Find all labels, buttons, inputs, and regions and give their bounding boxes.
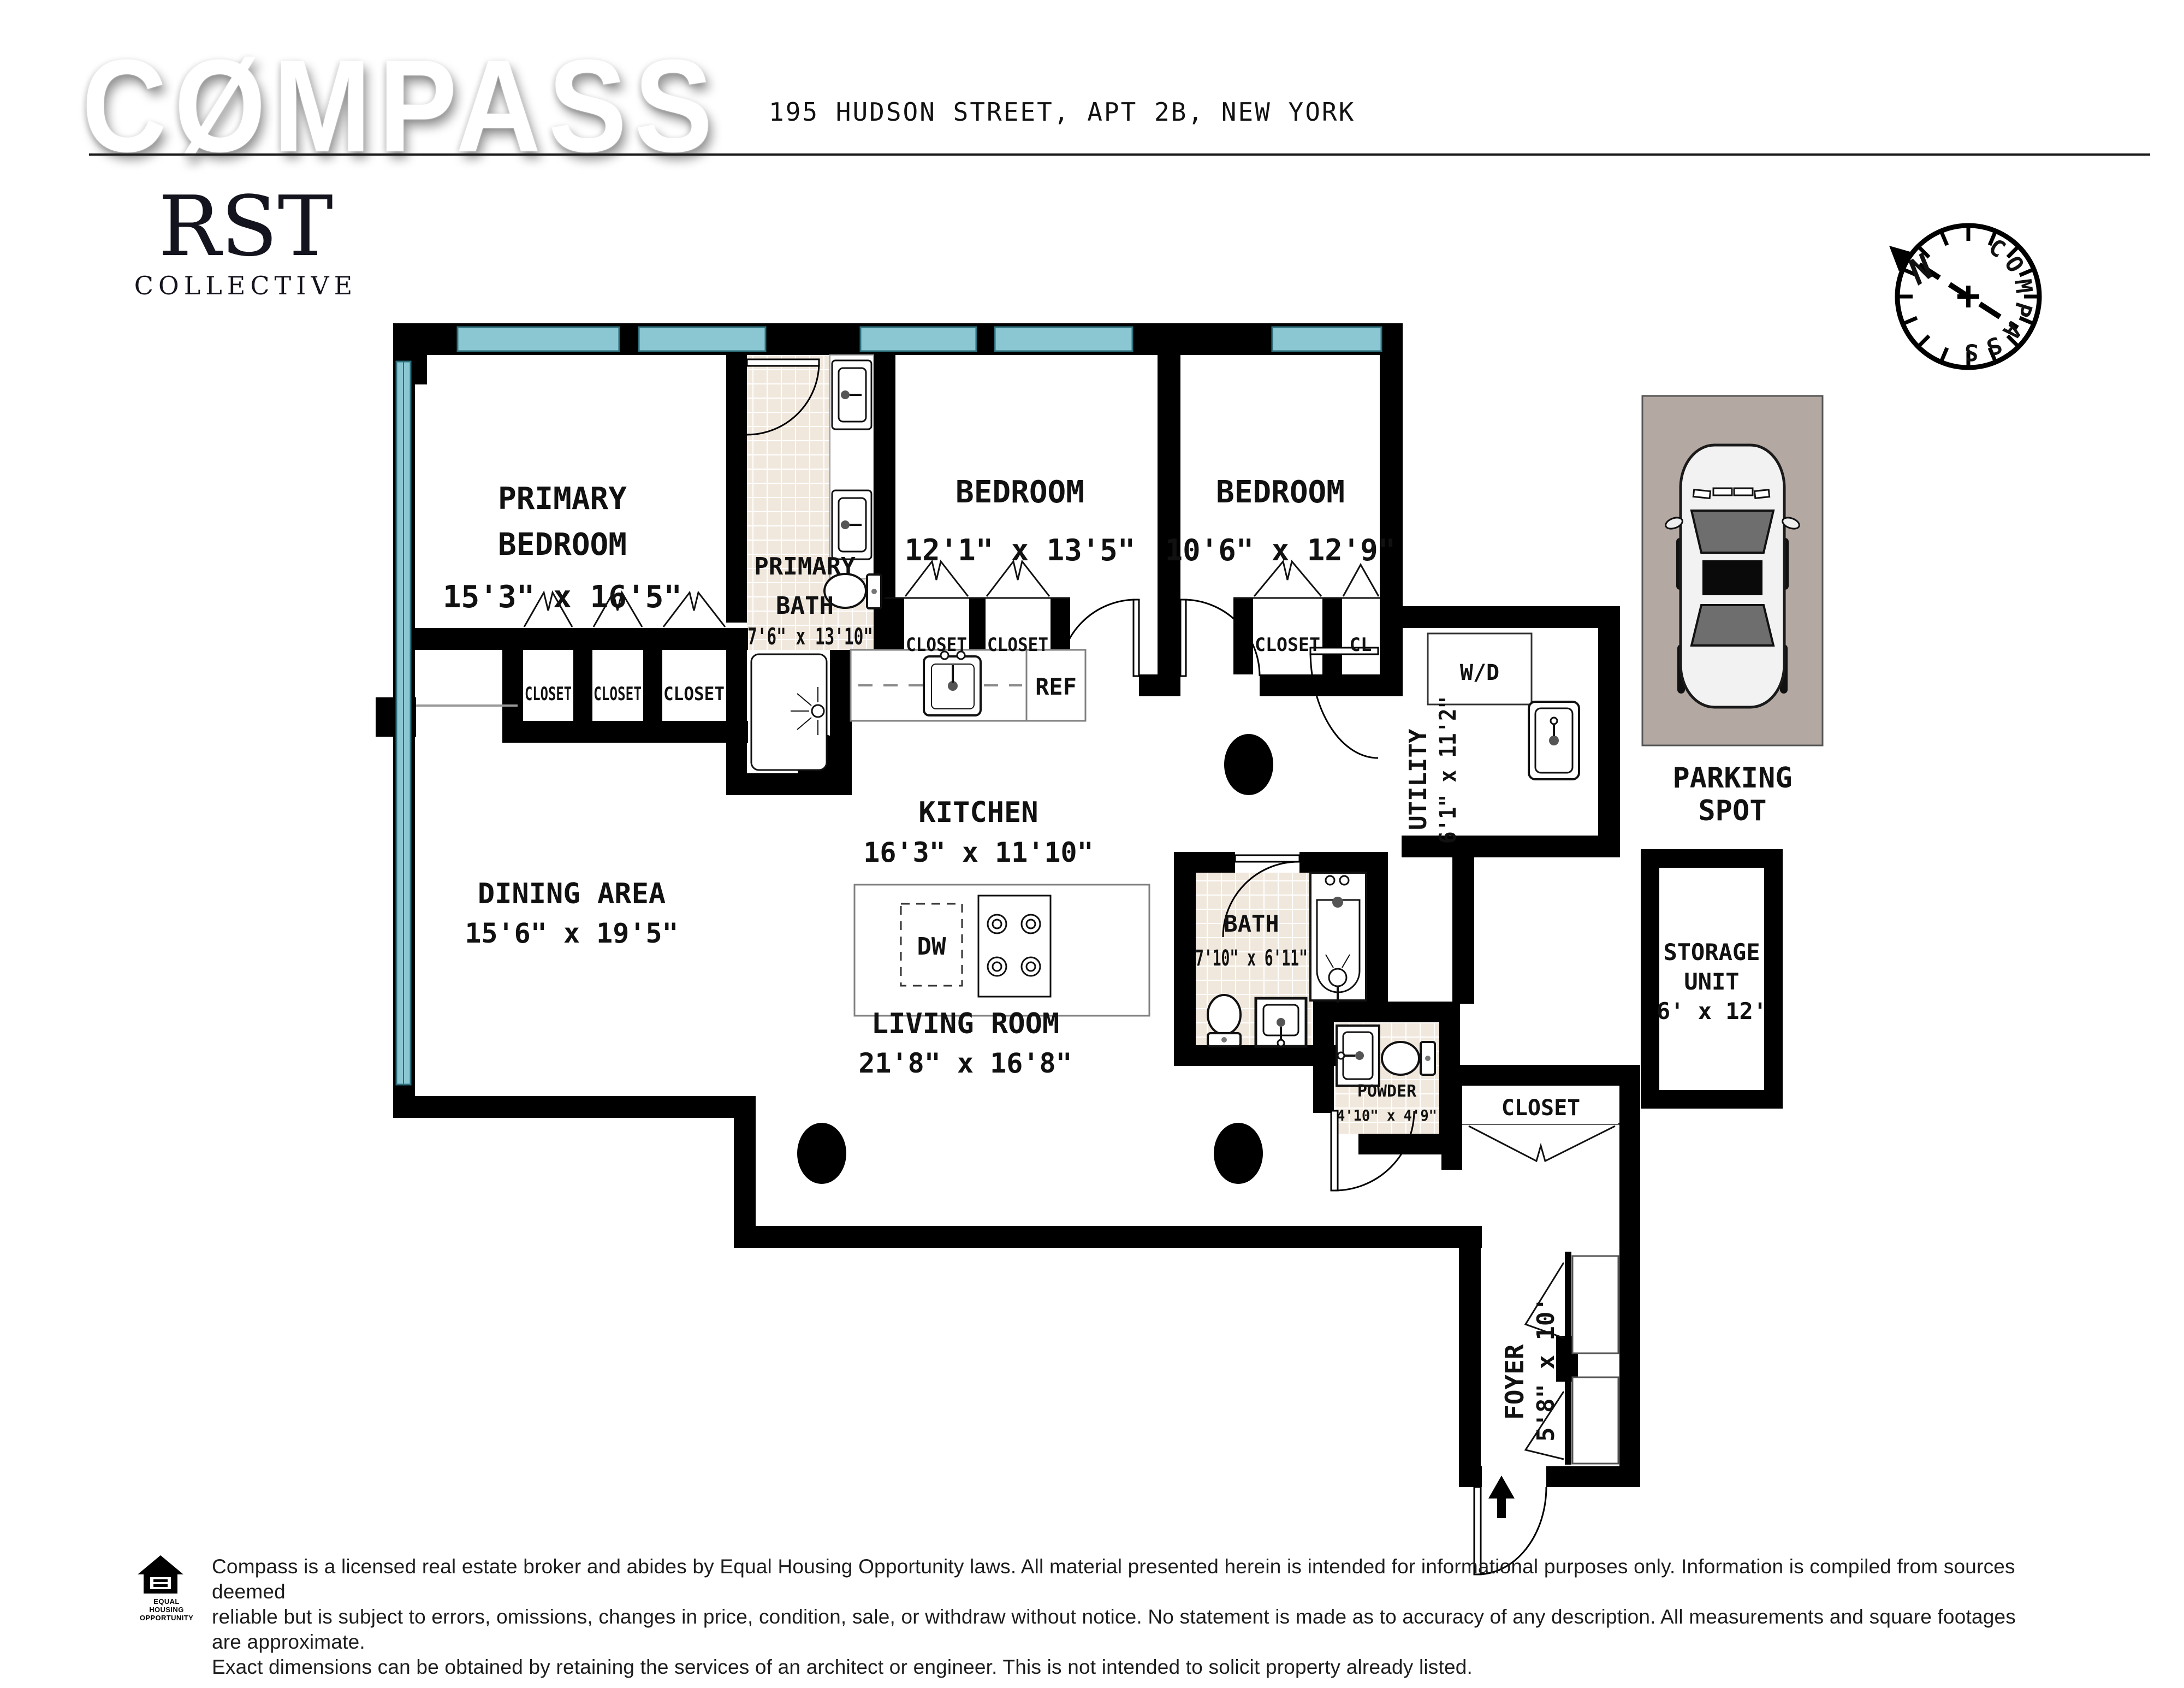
- equal-housing-text-2: OPPORTUNITY: [136, 1614, 197, 1622]
- closet-label-3: CLOSET: [663, 683, 725, 705]
- bedroom2-label: BEDROOM: [1216, 475, 1345, 510]
- primary-bedroom-label-2: BEDROOM: [498, 527, 627, 562]
- bedroom1-dims: 12'1" x 13'5": [905, 533, 1136, 567]
- living-room-label: LIVING ROOM: [871, 1008, 1059, 1040]
- dining-area-dims: 15'6" x 19'5": [465, 917, 678, 949]
- equal-housing-icon: [136, 1554, 185, 1595]
- disclaimer-line-2: reliable but is subject to errors, omiss…: [212, 1604, 2025, 1655]
- washer-dryer-label: W/D: [1460, 660, 1499, 685]
- bed2-closet-label: CLOSET: [1255, 634, 1320, 656]
- utility-door-arc: [1310, 651, 1378, 758]
- parking-label-2: SPOT: [1698, 795, 1766, 827]
- powder-toilet: [1382, 1042, 1435, 1075]
- bed1-closet-label-2: CLOSET: [987, 634, 1048, 656]
- storage-unit: STORAGE UNIT 6' x 12': [1641, 849, 1783, 1109]
- window-top-1: [458, 327, 619, 351]
- utility-label: UTILITY: [1404, 728, 1432, 830]
- powder-dims: 4'10" x 4'9": [1337, 1106, 1437, 1124]
- bed2-cl-label: CL: [1350, 634, 1372, 656]
- kitchen-label: KITCHEN: [918, 796, 1038, 829]
- bathtub: [1310, 873, 1366, 1003]
- compass-rose-icon: COMPASS N: [1889, 226, 2039, 368]
- window-top-2: [639, 327, 765, 351]
- foyer-dims: 5'8" x 10': [1532, 1297, 1560, 1442]
- bed2-cl-door: [1343, 565, 1379, 596]
- kitchen-fixtures: [851, 650, 1149, 1016]
- bedroom2-dims: 10'6" x 12'9": [1165, 533, 1396, 567]
- foyer-closet-panels: [1572, 1256, 1618, 1464]
- disclaimer-line-1: Compass is a licensed real estate broker…: [212, 1554, 2025, 1604]
- kitchen-sink: [924, 651, 981, 715]
- dining-area-label: DINING AREA: [478, 878, 666, 910]
- equal-housing-logo: EQUAL HOUSING OPPORTUNITY: [136, 1554, 197, 1680]
- disclaimer: Compass is a licensed real estate broker…: [212, 1554, 2025, 1680]
- closet-label-2: CLOSET: [594, 683, 642, 705]
- parking-spot: PARKING SPOT: [1642, 396, 1823, 827]
- bedroom2-door-leaf: [1180, 600, 1186, 676]
- footer: EQUAL HOUSING OPPORTUNITY Compass is a l…: [136, 1554, 2048, 1680]
- bath-dims: 7'10" x 6'11": [1195, 946, 1308, 971]
- window-top-3: [860, 327, 976, 351]
- closet-label-1: CLOSET: [525, 683, 572, 705]
- kitchen-dims: 16'3" x 11'10": [863, 837, 1093, 868]
- living-room-dims: 21'8" x 16'8": [858, 1047, 1072, 1079]
- dishwasher-label: DW: [917, 933, 946, 961]
- equal-housing-text-1: EQUAL HOUSING: [136, 1597, 197, 1614]
- storage-dims: 6' x 12': [1657, 998, 1767, 1024]
- window-top-5: [1272, 327, 1381, 351]
- bath-sink: [1256, 998, 1306, 1046]
- column-4: [1214, 1123, 1263, 1184]
- entry-arrow: [1488, 1476, 1515, 1518]
- utility-sink: [1529, 702, 1579, 779]
- parking-label-1: PARKING: [1672, 762, 1792, 795]
- primary-bedroom-dims: 15'3" x 16'5": [443, 579, 682, 615]
- bed1-closet-label-1: CLOSET: [906, 634, 967, 656]
- utility-dims: 6'1" x 11'2": [1434, 696, 1461, 844]
- bath-toilet: [1208, 995, 1241, 1046]
- hall-closet-door: [1469, 1126, 1615, 1161]
- bedroom1-label: BEDROOM: [956, 475, 1084, 510]
- primary-bath-door-leaf: [747, 359, 819, 366]
- refrigerator-label: REF: [1035, 673, 1077, 700]
- primary-bedroom-label-1: PRIMARY: [498, 481, 627, 517]
- bath-door-leaf: [1235, 855, 1299, 862]
- storage-label-1: STORAGE: [1663, 939, 1760, 966]
- powder-sink: [1337, 1026, 1379, 1086]
- powder-label: POWDER: [1357, 1082, 1417, 1101]
- bath-label: BATH: [1224, 910, 1279, 937]
- hall-closet-label: CLOSET: [1501, 1095, 1581, 1121]
- car-icon: [1664, 445, 1801, 707]
- storage-label-2: UNIT: [1684, 968, 1739, 995]
- stove: [978, 896, 1051, 997]
- disclaimer-line-3: Exact dimensions can be obtained by reta…: [212, 1655, 2025, 1680]
- shower: [751, 654, 827, 770]
- floor-plan: PRIMARY BEDROOM 15'3" x 16'5" PRIMARY BA…: [0, 0, 2184, 1688]
- primary-bath-label-2: BATH: [776, 592, 834, 620]
- foyer-label: FOYER: [1500, 1344, 1529, 1420]
- primary-bath-dims: 7'6" x 13'10": [747, 623, 873, 650]
- primary-bath-label-1: PRIMARY: [754, 553, 856, 581]
- window-top-4: [995, 327, 1132, 351]
- column-2: [1224, 734, 1273, 795]
- bedroom1-door-leaf: [1133, 600, 1139, 676]
- column-3: [797, 1123, 846, 1184]
